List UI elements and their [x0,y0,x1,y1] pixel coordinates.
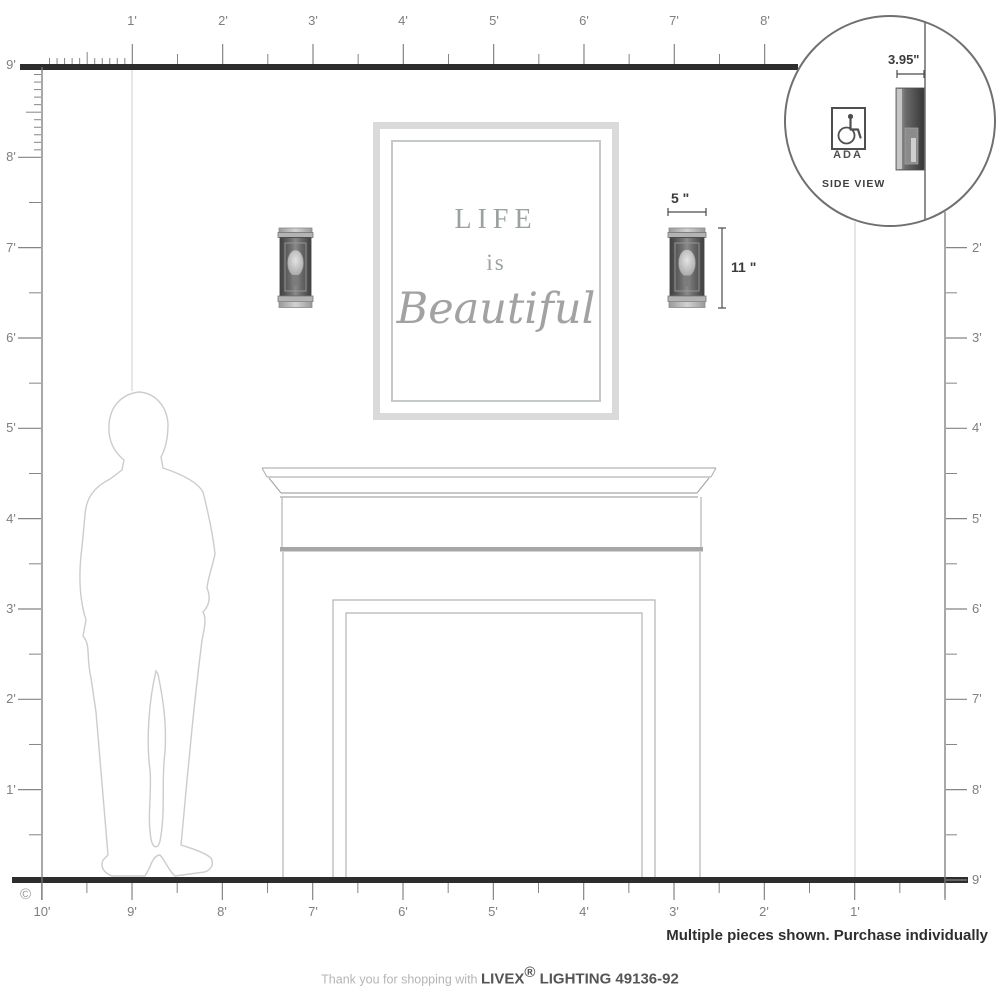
scale-diagram: 1' 2' 3' 4' 5' 6' 7' 8' 9' 8' 7' 6' 5' 4… [0,0,1000,1000]
left-ruler-label: 7' [2,241,20,255]
wheelchair-icon [833,109,864,148]
bottom-ruler-label: 10' [34,905,51,919]
right-ruler-label: 2' [972,241,982,255]
left-ruler-label: 8' [2,150,20,164]
left-ruler-label: 3' [2,602,20,616]
left-ruler-label: 5' [2,421,20,435]
art-text-beautiful: Beautiful [393,284,599,334]
inset-circle [785,16,995,226]
ada-label: ADA [827,149,869,161]
left-ruler-label: 1' [2,783,20,797]
wall-art-mat: LIFE is Beautiful [391,140,601,402]
person-silhouette [80,392,215,876]
width-dimension-line [668,208,706,216]
right-ruler-label: 4' [972,421,982,435]
left-ruler-label: 9' [2,58,20,72]
bottom-ruler-label: 2' [759,905,769,919]
top-ruler-label: 8' [760,14,770,28]
left-ruler-label: 6' [2,331,20,345]
top-ruler-label: 3' [308,14,318,28]
top-ruler-label: 4' [398,14,408,28]
copyright-mark: © [20,886,31,903]
registered-mark: ® [524,964,535,981]
art-text-is: is [393,250,599,276]
top-ruler-label: 2' [218,14,228,28]
side-view-label: SIDE VIEW [822,178,885,190]
right-ruler-label: 9' [972,873,982,887]
thanks-line: Thank you for shopping with LIVEX® LIGHT… [0,964,1000,988]
left-ruler-label: 2' [2,692,20,706]
bottom-ruler-label: 6' [398,905,408,919]
bottom-ruler-label: 3' [669,905,679,919]
product-line: LIGHTING 49136-92 [535,970,678,987]
bottom-ruler-label: 5' [488,905,498,919]
right-ruler-label: 3' [972,331,982,345]
left-wall-sconce [278,228,313,308]
top-ruler-label: 6' [579,14,589,28]
side-view-sconce [896,88,924,170]
right-wall-sconce [668,228,706,308]
top-ruler-label: 5' [489,14,499,28]
width-dimension-label: 5 " [671,190,689,206]
side-view-inset [785,16,995,226]
bottom-ruler-label: 9' [127,905,137,919]
bottom-ruler-label: 7' [308,905,318,919]
wall-art-frame: LIFE is Beautiful [373,122,619,420]
depth-dimension-label: 3.95" [888,52,919,67]
right-ruler-label: 8' [972,783,982,797]
left-ruler-label: 4' [2,512,20,526]
right-ruler-label: 7' [972,692,982,706]
bottom-ruler-label: 1' [850,905,860,919]
thanks-prefix: Thank you for shopping with [321,972,481,986]
height-dimension-label: 11 " [731,259,756,275]
brand-name: LIVEX [481,970,524,987]
ada-badge-box [831,107,866,150]
right-ruler-label: 5' [972,512,982,526]
purchase-note: Multiple pieces shown. Purchase individu… [666,927,988,944]
top-ruler-label: 1' [127,14,137,28]
height-dimension-line [718,228,726,308]
fireplace-mantel [262,468,716,878]
art-text-life: LIFE [393,204,599,236]
bottom-ruler-label: 4' [579,905,589,919]
top-ruler-label: 7' [669,14,679,28]
right-ruler-label: 6' [972,602,982,616]
bottom-ruler-label: 8' [217,905,227,919]
